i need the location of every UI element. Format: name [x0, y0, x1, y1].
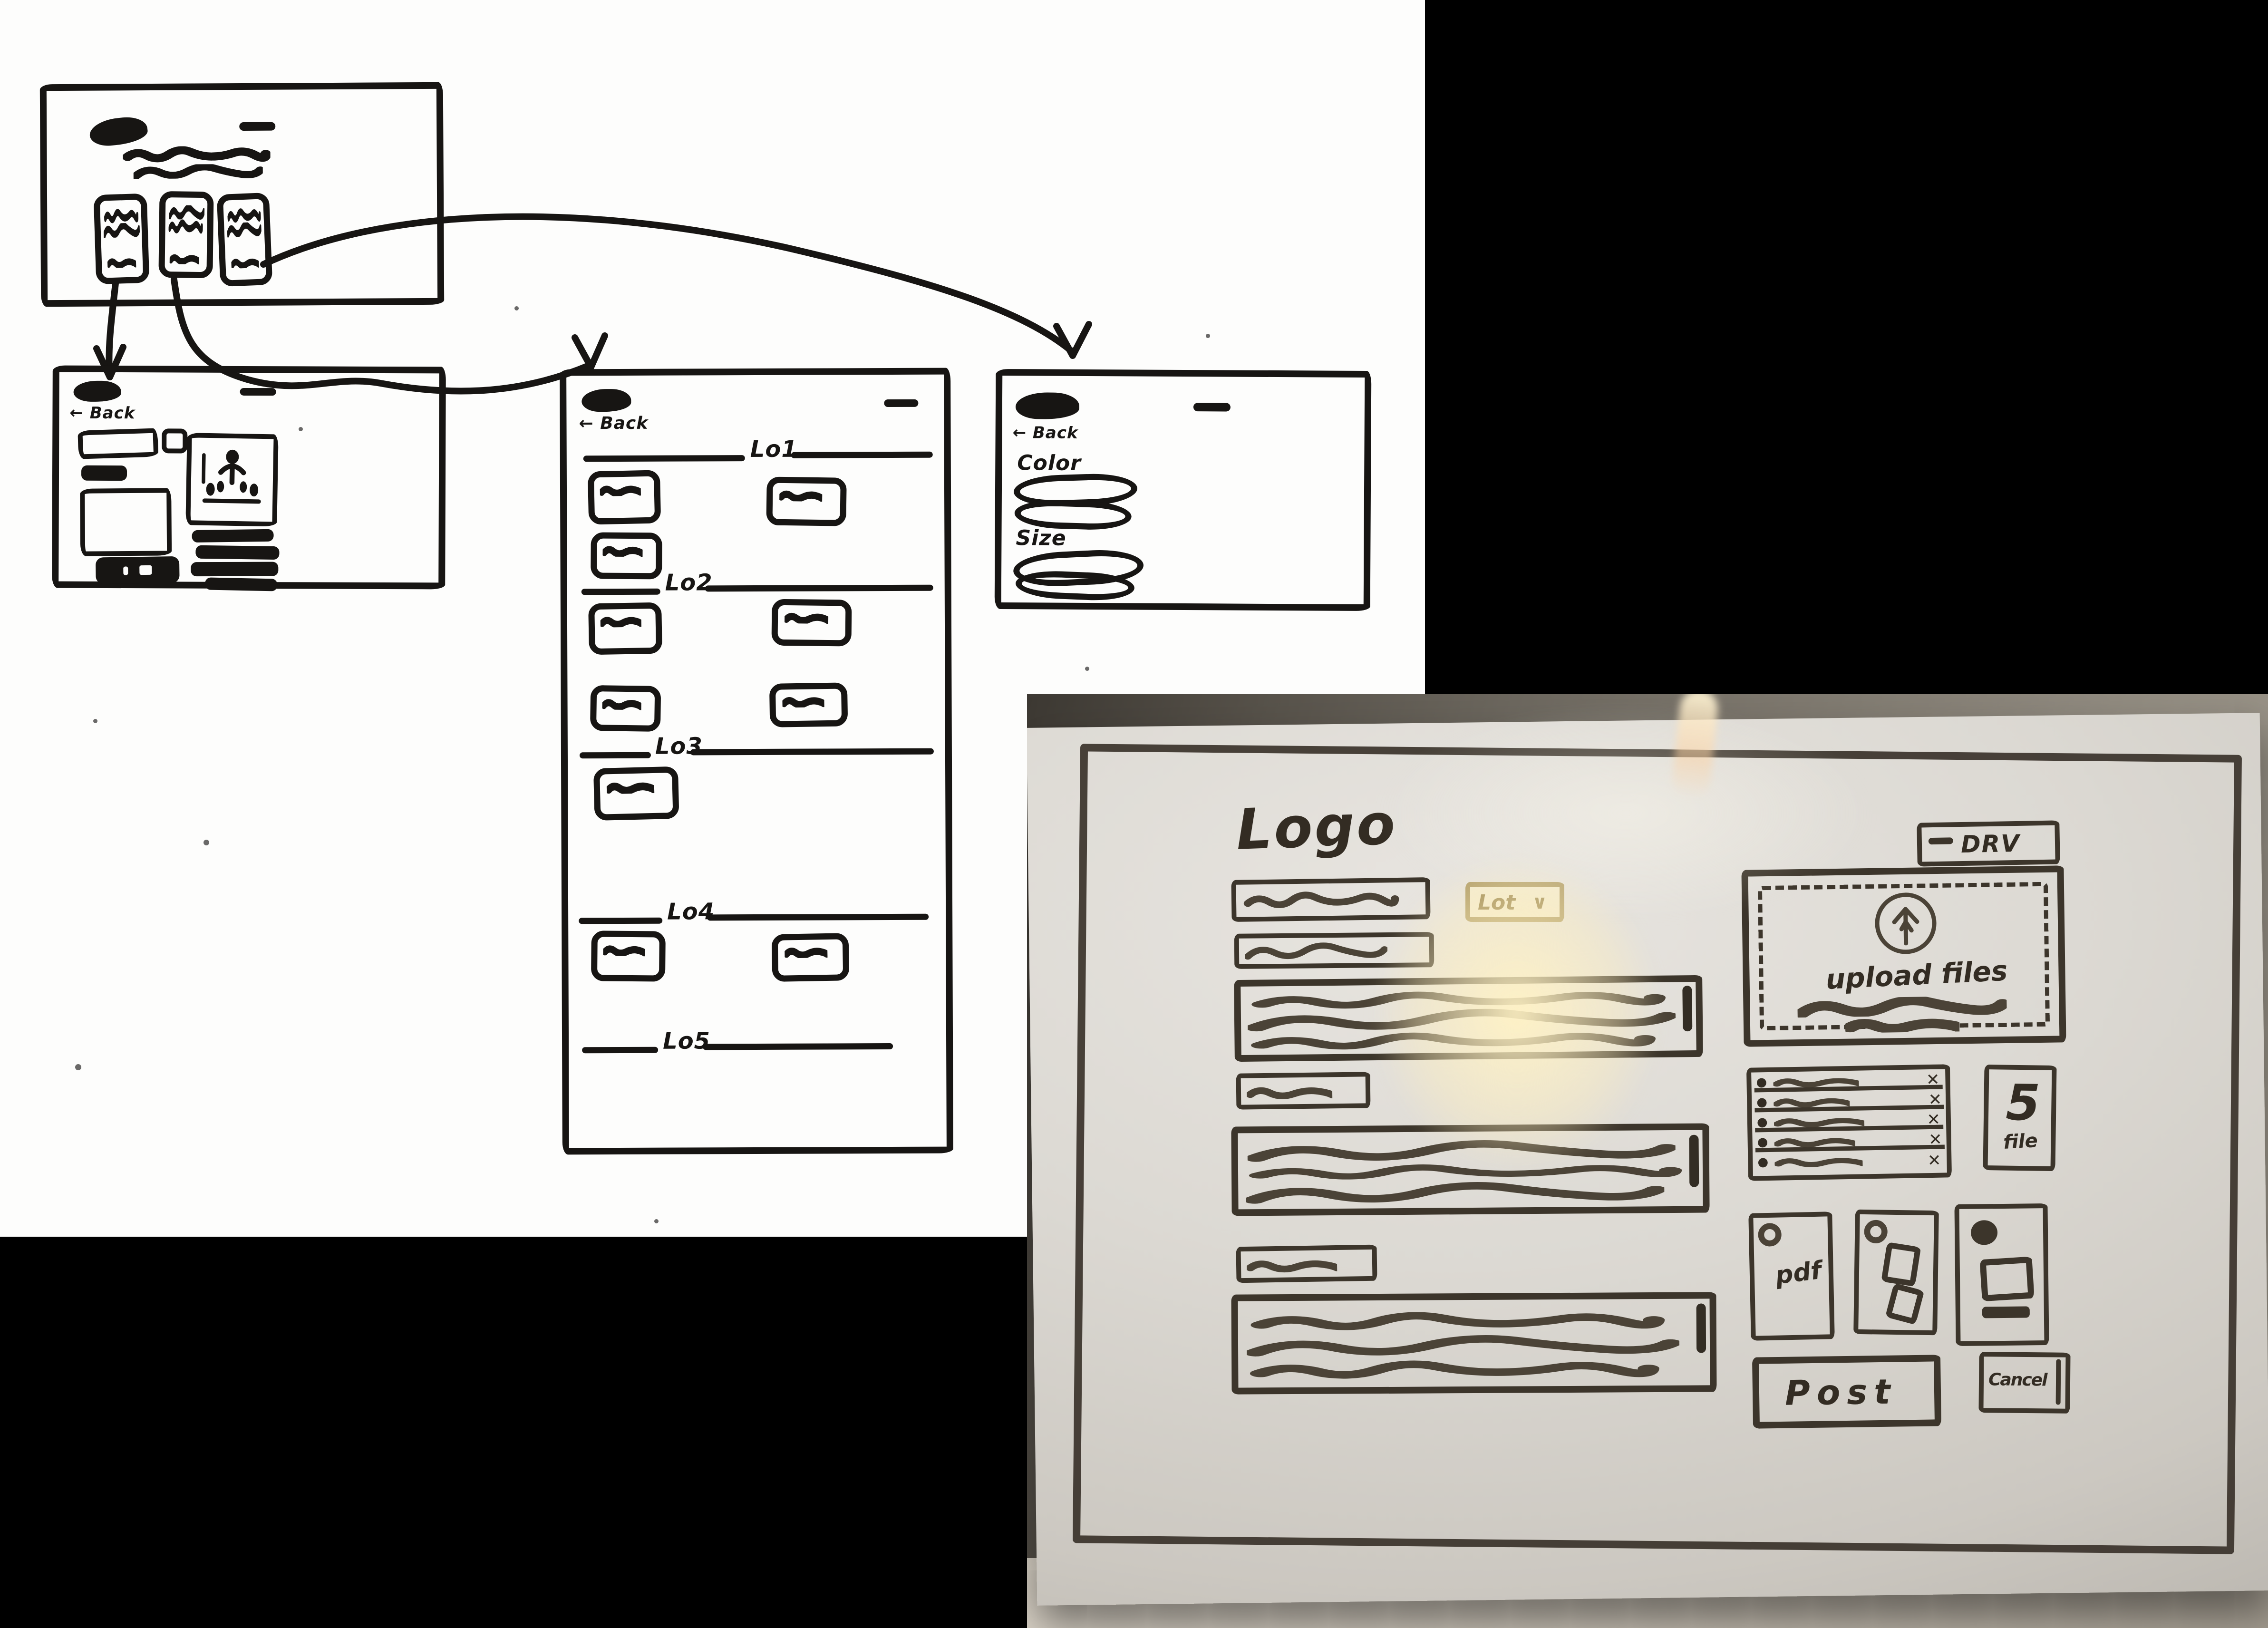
- scrollbar-thumb[interactable]: [1696, 1303, 1706, 1353]
- textarea-scribble: [1247, 1334, 1679, 1357]
- selected-dot-icon: [1971, 1220, 1998, 1245]
- paper-speck: [93, 719, 97, 723]
- black-region-bottom-left: [0, 1237, 1027, 1628]
- card-image-scribble: [169, 205, 204, 220]
- product-photo-frame: [185, 433, 278, 526]
- scrollbar-thumb[interactable]: [1689, 1135, 1699, 1187]
- upload-scribble: [1845, 1015, 1959, 1033]
- lot-item-card[interactable]: [766, 476, 846, 526]
- card-image-scribble: [168, 219, 203, 234]
- paper-speck: [75, 1064, 81, 1070]
- file-row: ● ✕: [1755, 1150, 1944, 1173]
- radio-icon: [1862, 1218, 1890, 1245]
- home-card-3[interactable]: [217, 193, 273, 287]
- menu-placeholder: [240, 388, 276, 396]
- file-row: ● ✕: [1754, 1070, 1943, 1093]
- bullet-icon: ●: [1756, 1095, 1767, 1109]
- section-label: Lo2: [665, 569, 713, 596]
- thumbnail-placeholder: [1885, 1283, 1925, 1325]
- menu-placeholder: [884, 399, 918, 407]
- section-divider-line: [703, 1043, 893, 1050]
- card-scribble: [785, 611, 828, 624]
- section-divider-line: [582, 589, 660, 595]
- people-sketch: [194, 441, 270, 514]
- filename-scribble: [1773, 1075, 1859, 1088]
- lot-item-card[interactable]: [590, 685, 661, 732]
- menu-placeholder: [1193, 403, 1231, 411]
- section-divider-line: [583, 455, 745, 462]
- card-scribble: [782, 695, 824, 707]
- black-region-top-right: [1425, 0, 2268, 694]
- whiteboard-photo: Logo DRV Lot ∨: [1027, 694, 2268, 1628]
- draft-button-label: DRV: [1961, 830, 2021, 858]
- field-label-input[interactable]: [1236, 1245, 1377, 1283]
- color-label: Color: [1017, 451, 1081, 475]
- lot-item-card[interactable]: [588, 602, 662, 655]
- section-divider-line: [580, 752, 651, 759]
- radio-icon: [1756, 1221, 1783, 1248]
- section-divider-line: [582, 1047, 658, 1054]
- attachment-card-images[interactable]: [1853, 1210, 1939, 1335]
- filename-scribble: [1774, 1154, 1862, 1168]
- detail-text-row: [192, 529, 273, 543]
- detail-text-row: [195, 545, 279, 560]
- paper-speck: [1206, 334, 1210, 338]
- filename-scribble: [1774, 1095, 1850, 1108]
- cancel-button[interactable]: Cancel: [1978, 1352, 2070, 1414]
- lot-item-card[interactable]: [769, 682, 848, 727]
- lot-item-card[interactable]: [771, 599, 852, 647]
- screen-lot-list: ← Back Lo1 Lo2: [560, 368, 953, 1155]
- filename-scribble: [1774, 1114, 1864, 1128]
- bullet-icon: ●: [1757, 1115, 1768, 1129]
- back-link[interactable]: ← Back: [1013, 423, 1078, 443]
- upload-scribble: [1797, 996, 2007, 1017]
- attachment-card-video[interactable]: [1954, 1203, 2049, 1346]
- screen-home: [40, 82, 444, 307]
- input-scribble: [1247, 1256, 1338, 1273]
- cancel-button-inner-line: [2056, 1359, 2061, 1405]
- back-link[interactable]: ← Back: [579, 414, 648, 434]
- lot-item-card[interactable]: [591, 532, 662, 579]
- logo-placeholder: [74, 381, 121, 402]
- card-scribble: [602, 697, 641, 710]
- heading-scribble: [123, 146, 270, 163]
- card-scribble: [600, 483, 641, 496]
- arrow-to-options-head: [1056, 324, 1089, 356]
- card-scribble: [607, 780, 655, 794]
- card-scribble: [601, 614, 641, 627]
- thumbnail-placeholder: [1979, 1257, 2034, 1302]
- card-scribble: [603, 943, 645, 956]
- screen-options: ← Back Color Size: [995, 369, 1372, 611]
- home-card-2[interactable]: [158, 191, 213, 278]
- back-link[interactable]: ← Back: [69, 404, 135, 423]
- file-row: ● ✕: [1755, 1110, 1944, 1133]
- card-image-scribble: [103, 223, 140, 238]
- card-scribble: [779, 489, 822, 502]
- logo-placeholder: [1016, 392, 1079, 419]
- section-label: Lo3: [655, 733, 703, 759]
- section-label: Lo4: [667, 898, 715, 925]
- arrow-to-list-head: [575, 336, 605, 367]
- card-caption-scribble: [170, 252, 199, 264]
- file-count-number: 5: [2006, 1074, 2041, 1132]
- post-button-label: Post: [1784, 1372, 1897, 1413]
- section-label: Lo1: [750, 436, 798, 463]
- notes-textarea[interactable]: [1231, 1292, 1716, 1394]
- heading-scribble: [134, 164, 263, 179]
- file-count-unit: file: [2003, 1130, 2038, 1153]
- remove-file-icon[interactable]: ✕: [1929, 1130, 1942, 1149]
- card-image-scribble: [227, 208, 261, 223]
- detail-text-row: [191, 562, 278, 577]
- section-divider-line: [707, 914, 929, 921]
- bullet-icon: ●: [1757, 1135, 1768, 1149]
- remove-file-icon[interactable]: ✕: [1928, 1090, 1942, 1109]
- thumbnail-placeholder: [1881, 1242, 1921, 1287]
- section-divider-line: [705, 585, 933, 592]
- title-input[interactable]: [78, 428, 158, 459]
- logo-placeholder: [582, 389, 631, 412]
- file-row: ● ✕: [1755, 1130, 1945, 1153]
- card-caption-scribble: [107, 256, 136, 268]
- input-scribble: [1247, 1083, 1332, 1100]
- quantity-box[interactable]: [162, 428, 187, 453]
- paper-speck: [514, 306, 519, 310]
- remove-file-icon[interactable]: ✕: [1928, 1151, 1941, 1170]
- menu-placeholder: [239, 122, 275, 131]
- button-label-mark: [139, 565, 152, 575]
- price-bar: [81, 465, 127, 481]
- card-image-scribble: [104, 208, 139, 223]
- file-row: ● ✕: [1754, 1090, 1944, 1113]
- post-button[interactable]: Post: [1752, 1355, 1941, 1429]
- remove-file-icon[interactable]: ✕: [1926, 1070, 1940, 1089]
- lot-item-card[interactable]: [588, 470, 661, 524]
- size-label: Size: [1016, 526, 1066, 551]
- file-count-badge: 5 file: [1983, 1065, 2056, 1171]
- remove-file-icon[interactable]: ✕: [1927, 1110, 1940, 1129]
- uploaded-file-list: ● ✕ ● ✕ ● ✕ ● ✕: [1746, 1064, 1952, 1181]
- bullet-icon: ●: [1757, 1155, 1768, 1169]
- bullet-icon: ●: [1756, 1075, 1767, 1089]
- section-divider-line: [690, 748, 934, 756]
- detail-text-row: [205, 577, 278, 591]
- thumbnail-underline: [1982, 1306, 2030, 1318]
- card-caption-scribble: [231, 256, 259, 269]
- button-label-mark: [123, 566, 128, 575]
- textarea-scribble: [1248, 1358, 1661, 1381]
- section-label: Lo5: [663, 1027, 710, 1054]
- filename-scribble: [1774, 1134, 1855, 1148]
- card-scribble: [602, 544, 642, 557]
- description-box[interactable]: [80, 488, 172, 556]
- attachment-card-label: pdf: [1774, 1256, 1823, 1290]
- lot-item-card[interactable]: [772, 933, 850, 982]
- paper-speck: [1085, 667, 1089, 671]
- textarea-scribble: [1249, 1309, 1667, 1333]
- home-card-1[interactable]: [94, 194, 150, 284]
- composite-canvas: ← Back: [0, 0, 2268, 1628]
- flashlight-glare: [1331, 808, 1702, 1217]
- section-divider-line: [579, 918, 662, 924]
- cancel-button-label: Cancel: [1988, 1370, 2047, 1390]
- logo-placeholder: [88, 115, 149, 148]
- attachment-card-pdf[interactable]: pdf: [1748, 1211, 1835, 1341]
- buy-button[interactable]: [96, 556, 180, 584]
- screen-product-detail: ← Back: [52, 366, 446, 590]
- card-scribble: [785, 945, 827, 959]
- paper-speck: [204, 840, 209, 845]
- card-image-scribble: [227, 222, 262, 238]
- lot-item-card[interactable]: [591, 930, 666, 981]
- paper-speck: [654, 1219, 659, 1223]
- section-divider-line: [791, 452, 933, 458]
- lot-item-card[interactable]: [593, 766, 679, 821]
